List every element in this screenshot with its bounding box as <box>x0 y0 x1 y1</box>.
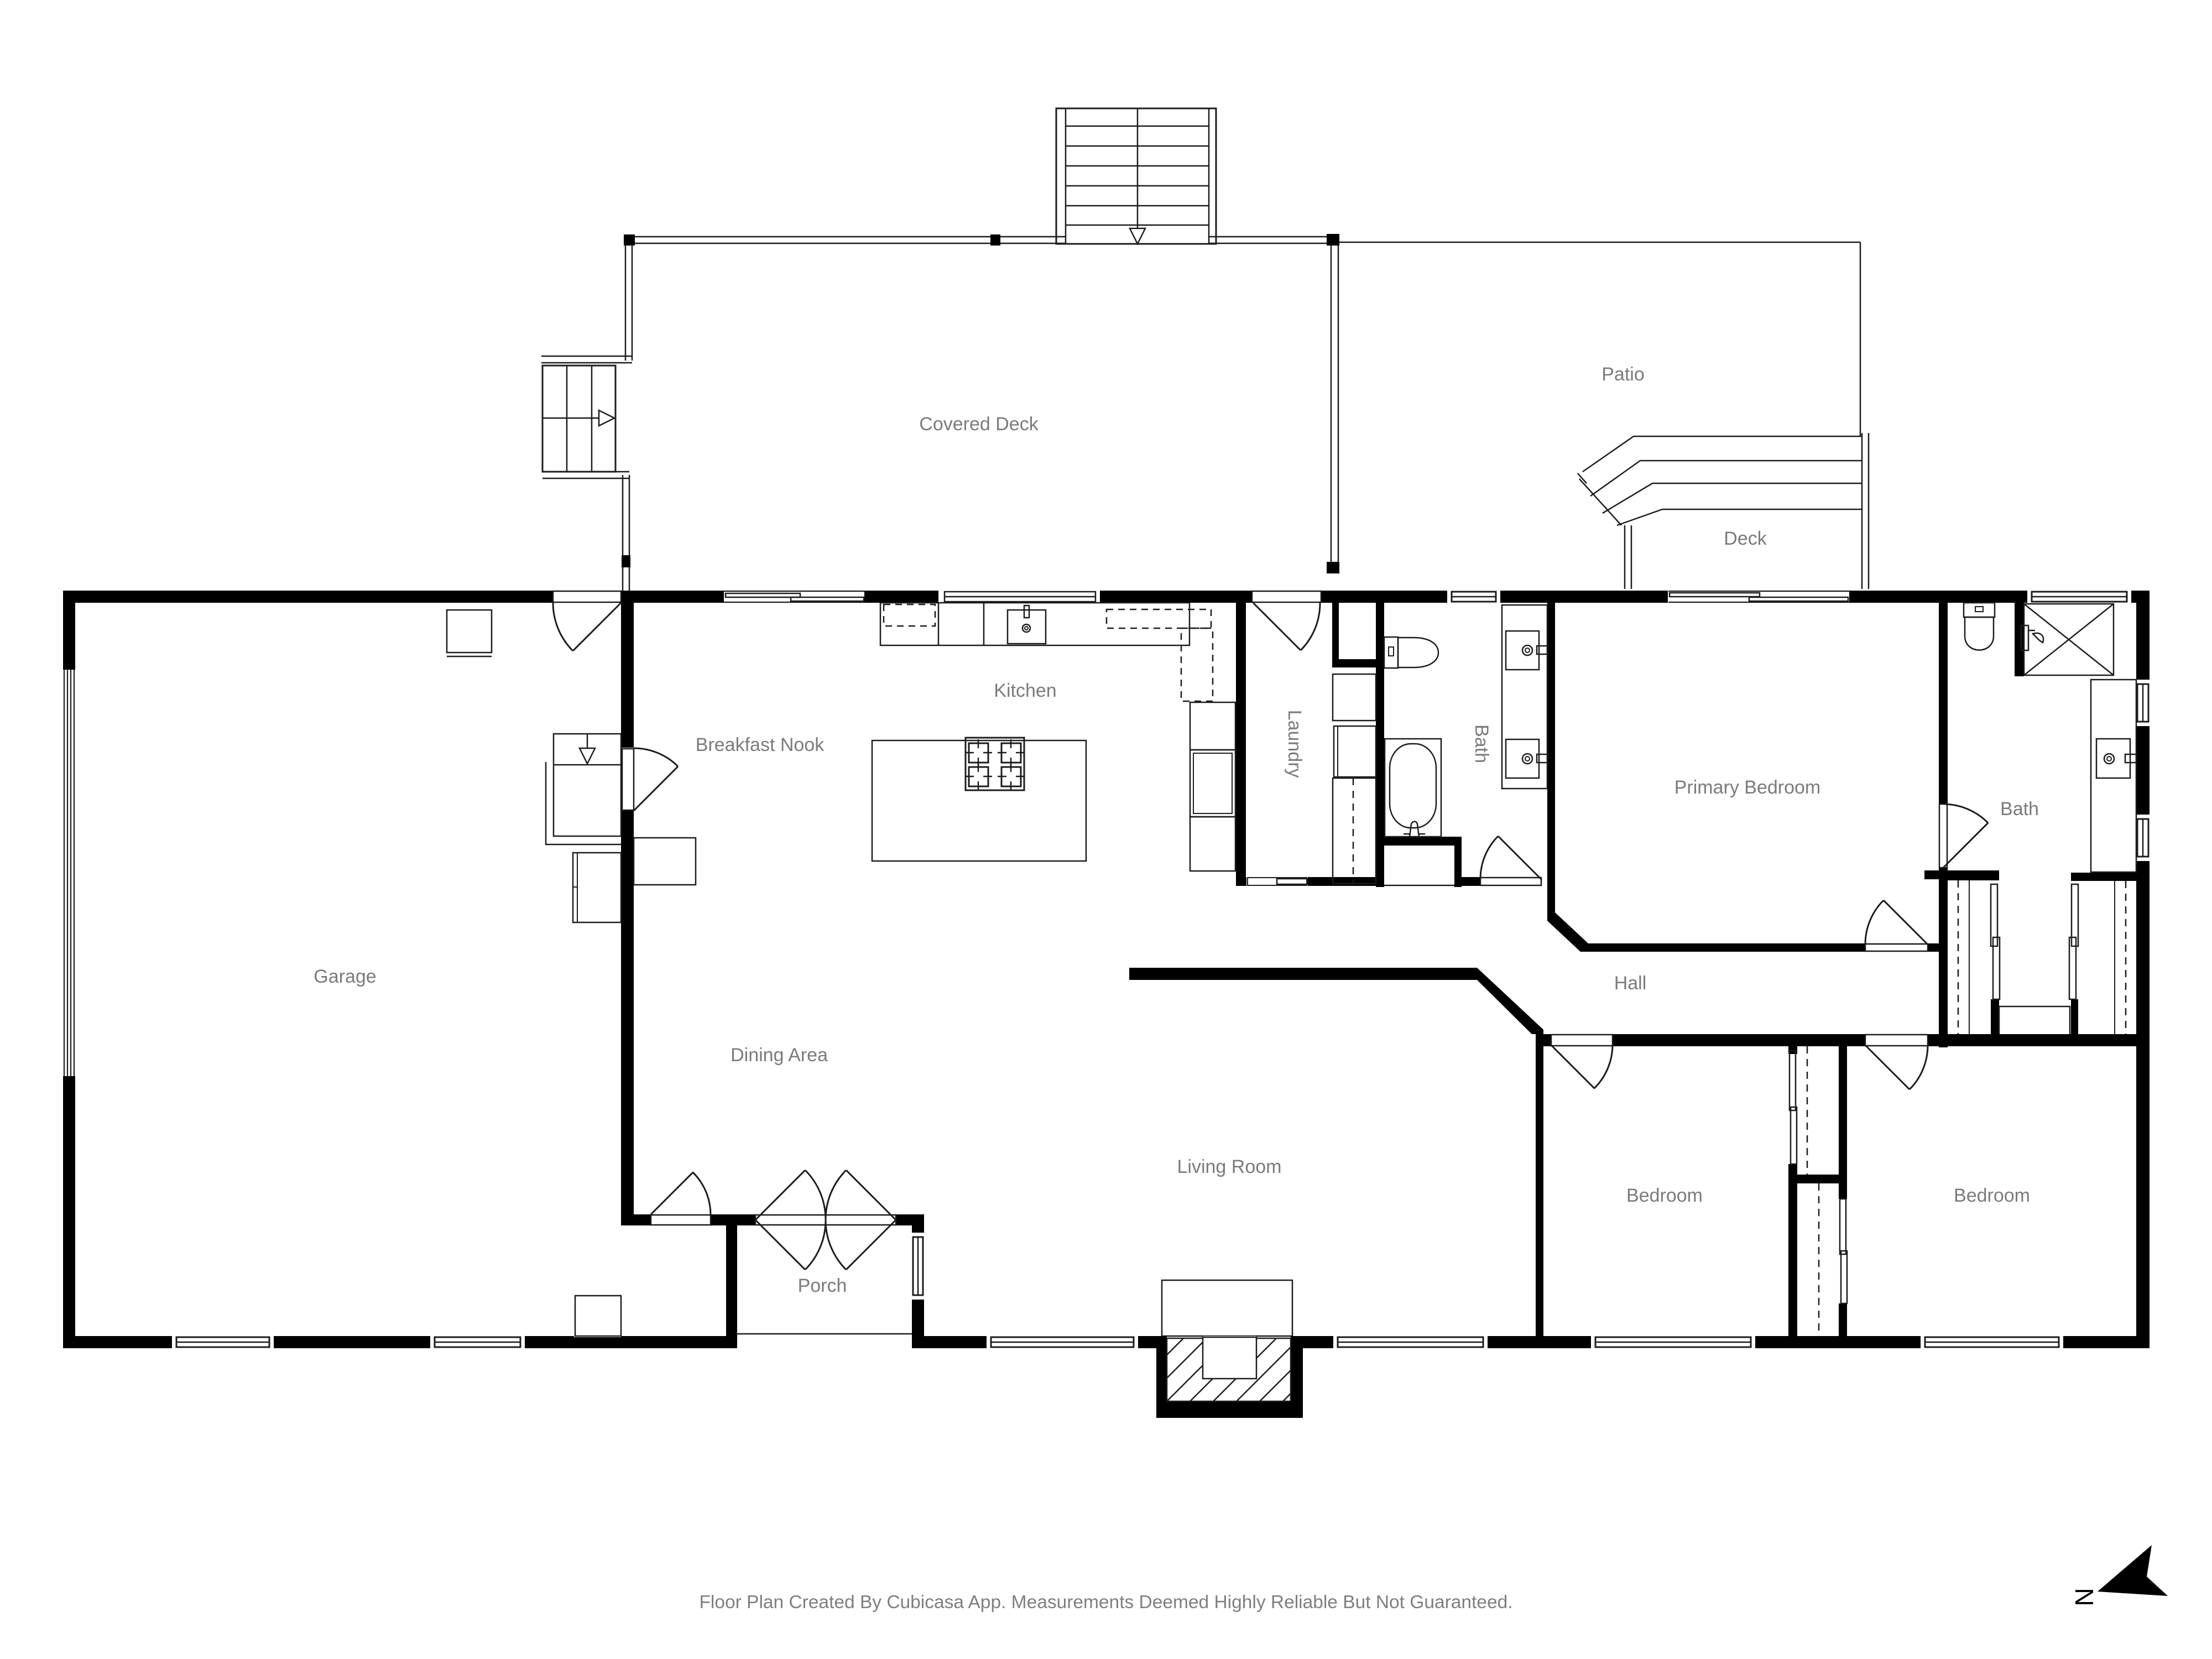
svg-text:Bath: Bath <box>2000 799 2039 820</box>
svg-text:Bedroom: Bedroom <box>1626 1185 1703 1206</box>
svg-text:Bath: Bath <box>1471 724 1492 763</box>
svg-text:Patio: Patio <box>1601 364 1645 385</box>
svg-text:Porch: Porch <box>798 1275 847 1296</box>
svg-text:Dining Area: Dining Area <box>731 1045 828 1066</box>
svg-text:Primary Bedroom: Primary Bedroom <box>1674 777 1821 798</box>
svg-text:Kitchen: Kitchen <box>994 680 1056 701</box>
svg-text:Breakfast Nook: Breakfast Nook <box>696 734 825 755</box>
svg-text:N: N <box>2070 1588 2099 1606</box>
svg-text:Living Room: Living Room <box>1177 1156 1282 1177</box>
svg-text:Covered Deck: Covered Deck <box>919 414 1039 435</box>
svg-text:Garage: Garage <box>314 966 376 987</box>
svg-text:Floor Plan Created By Cubicasa: Floor Plan Created By Cubicasa App. Meas… <box>699 1592 1512 1613</box>
svg-text:Deck: Deck <box>1724 528 1767 549</box>
svg-text:Bedroom: Bedroom <box>1954 1185 2030 1206</box>
svg-text:Laundry: Laundry <box>1284 710 1305 778</box>
svg-text:Hall: Hall <box>1614 973 1647 994</box>
